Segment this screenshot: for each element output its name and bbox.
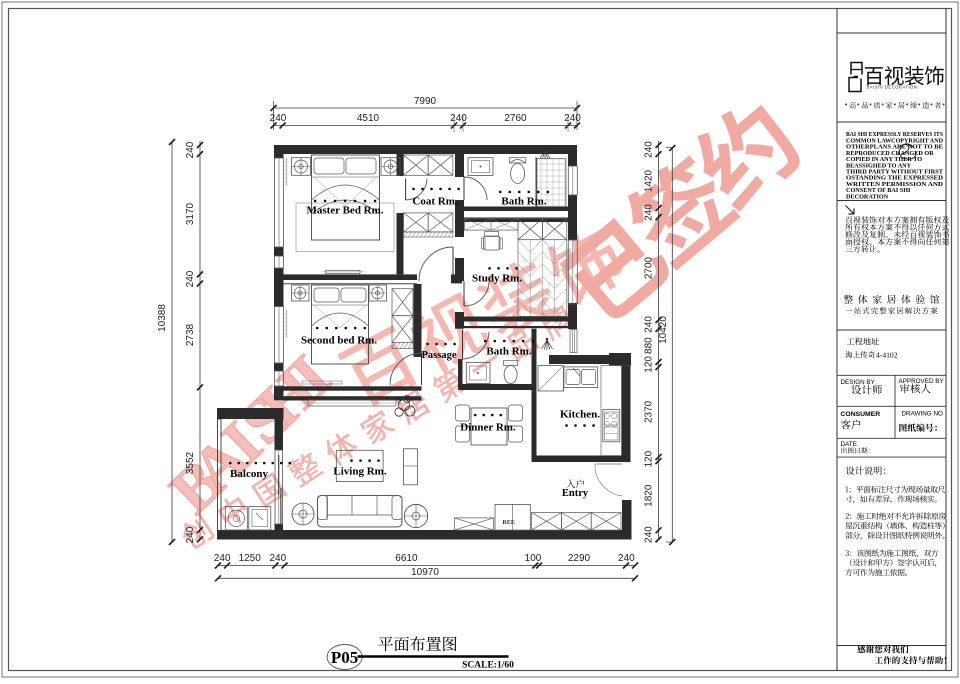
svg-text:240: 240 <box>644 316 655 333</box>
svg-text:Bath Rm.: Bath Rm. <box>501 196 546 208</box>
svg-text:240: 240 <box>270 113 287 124</box>
svg-text:240: 240 <box>269 553 286 564</box>
svg-text:10420: 10420 <box>658 316 669 344</box>
svg-text:3170: 3170 <box>185 202 196 225</box>
svg-text:4510: 4510 <box>357 113 380 124</box>
svg-text:240: 240 <box>185 526 196 543</box>
svg-text:Coat Rm.: Coat Rm. <box>412 196 457 208</box>
svg-text:4-4102: 4-4102 <box>876 351 898 360</box>
svg-text:240: 240 <box>185 141 196 158</box>
svg-text:DECORATION: DECORATION <box>846 193 889 200</box>
svg-text:3552: 3552 <box>185 451 196 474</box>
svg-text:SCALE:1/60: SCALE:1/60 <box>462 661 514 671</box>
svg-text:120: 120 <box>644 356 655 373</box>
svg-text:2290: 2290 <box>568 553 591 564</box>
svg-text:Dinner Rm.: Dinner Rm. <box>460 422 516 434</box>
svg-text:Second bed Rm.: Second bed Rm. <box>301 335 377 347</box>
svg-text:240: 240 <box>185 270 196 287</box>
svg-text:120: 120 <box>644 450 655 467</box>
svg-text:240: 240 <box>564 113 581 124</box>
svg-text:2738: 2738 <box>185 323 196 346</box>
svg-text:2370: 2370 <box>644 400 655 423</box>
svg-text:1820: 1820 <box>644 484 655 507</box>
svg-text:100: 100 <box>525 553 542 564</box>
svg-text:1250: 1250 <box>239 553 262 564</box>
svg-text:CONSUMER: CONSUMER <box>841 411 881 418</box>
svg-text:240: 240 <box>450 113 467 124</box>
svg-text:Bath Rm.: Bath Rm. <box>486 346 531 358</box>
svg-text:240: 240 <box>214 553 231 564</box>
svg-text:240: 240 <box>644 204 655 221</box>
svg-text:REF.: REF. <box>503 520 516 526</box>
svg-text:Study Rm.: Study Rm. <box>472 273 522 285</box>
svg-text:P05: P05 <box>331 648 358 667</box>
svg-text:BAISHI DECORATION: BAISHI DECORATION <box>867 85 918 90</box>
svg-text:Balcony: Balcony <box>230 468 268 480</box>
svg-text:2760: 2760 <box>504 113 527 124</box>
svg-text:DRAWING NO: DRAWING NO <box>902 411 943 418</box>
svg-text:DESIGN BY: DESIGN BY <box>841 379 876 386</box>
svg-text:Kitchen.: Kitchen. <box>560 409 600 421</box>
svg-text:6610: 6610 <box>395 553 418 564</box>
svg-text:Master Bed Rm.: Master Bed Rm. <box>306 205 383 217</box>
svg-text:880: 880 <box>644 337 655 354</box>
svg-text:7990: 7990 <box>414 96 437 107</box>
svg-text:APPROVED BY: APPROVED BY <box>899 378 945 385</box>
svg-text:2700: 2700 <box>644 256 655 279</box>
svg-text:1420: 1420 <box>644 169 655 192</box>
svg-text:Entry: Entry <box>562 488 589 499</box>
svg-text:240: 240 <box>618 553 635 564</box>
svg-text:240: 240 <box>644 526 655 543</box>
svg-text:Living Rm.: Living Rm. <box>333 466 386 478</box>
svg-text:240: 240 <box>644 141 655 158</box>
svg-text:10970: 10970 <box>411 567 439 578</box>
svg-text:Passage: Passage <box>422 350 457 361</box>
svg-text:DATE: DATE <box>841 441 857 448</box>
svg-text:10388: 10388 <box>157 304 168 332</box>
